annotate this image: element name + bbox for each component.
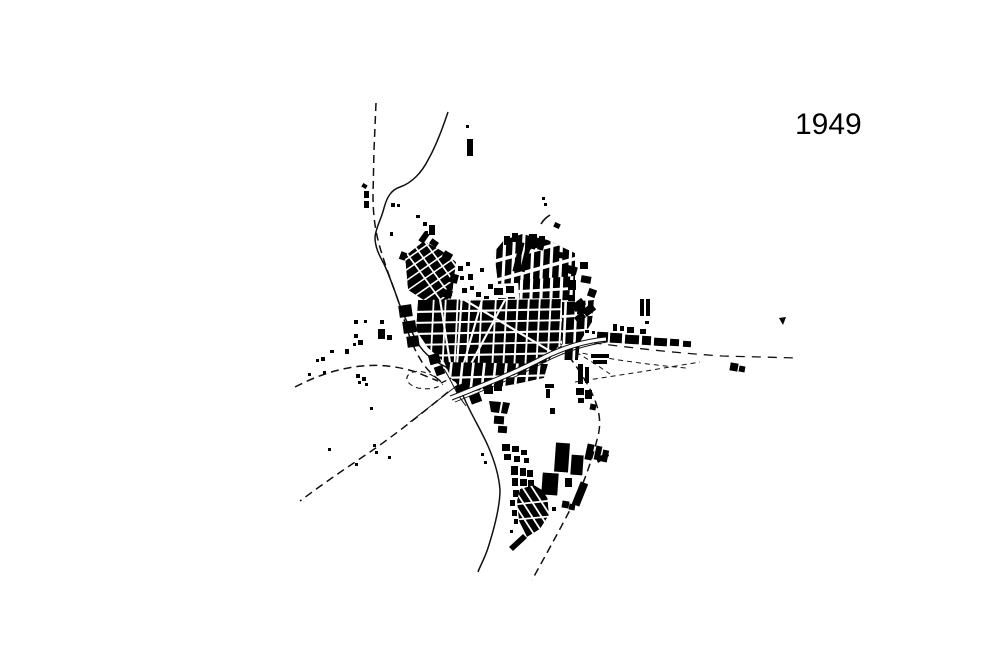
svg-text:1949: 1949 [795,108,862,141]
